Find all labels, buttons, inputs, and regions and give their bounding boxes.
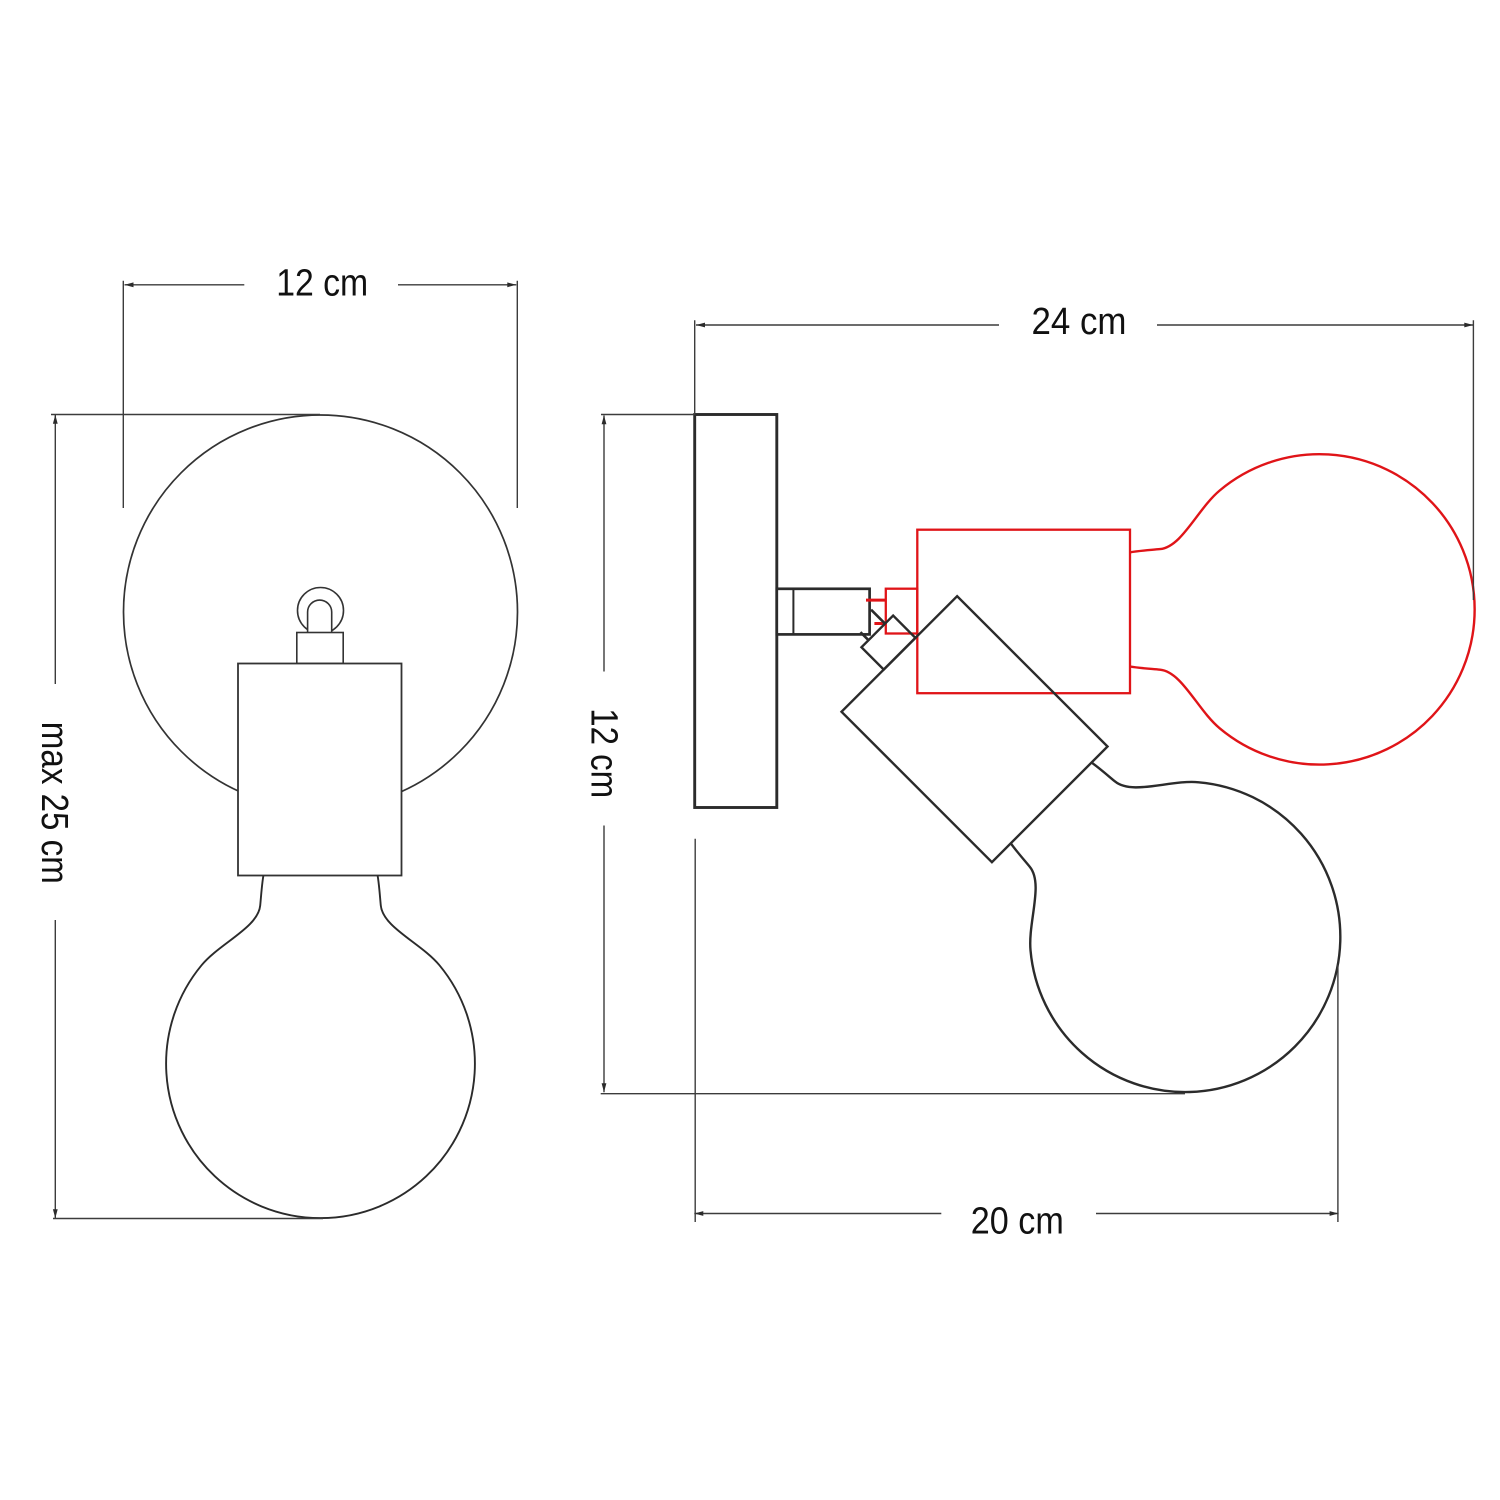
svg-text:12 cm: 12 cm xyxy=(583,708,625,798)
svg-text:12 cm: 12 cm xyxy=(276,263,368,305)
svg-text:20 cm: 20 cm xyxy=(971,1201,1064,1243)
svg-text:max 25 cm: max 25 cm xyxy=(33,722,75,884)
svg-text:24 cm: 24 cm xyxy=(1032,301,1127,343)
